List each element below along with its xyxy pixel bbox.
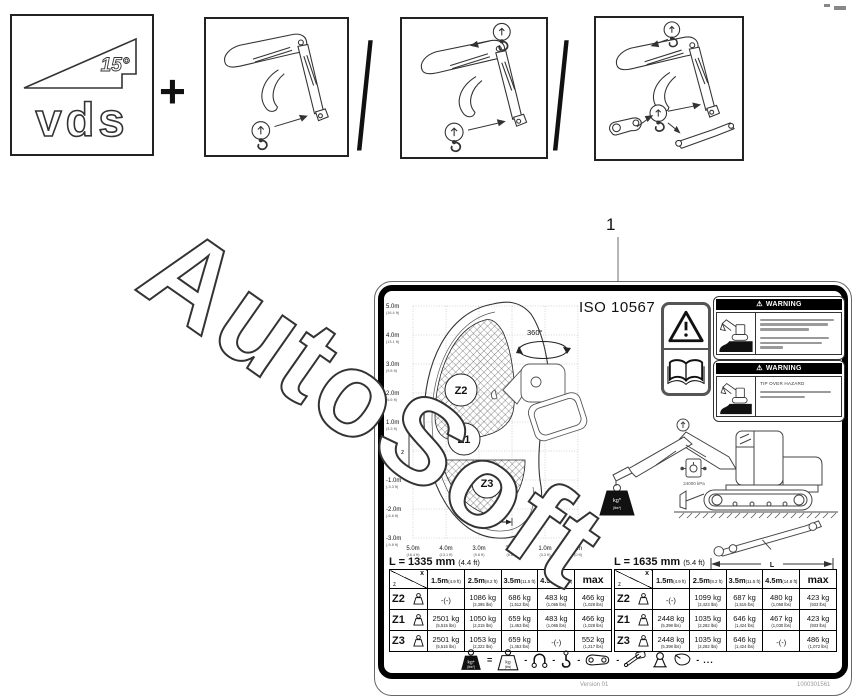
weight-icon: [637, 593, 650, 605]
col-header-max: max: [800, 570, 837, 589]
capacity-table-1635: L = 1635 mm (5.4 ft) x z 1.5m(4.9 ft) 2.…: [614, 556, 837, 652]
warning-header: ⚠ WARNING: [716, 363, 842, 374]
excavator-pictogram: [717, 313, 756, 354]
capacity-cell: 423 kg(933 lbs): [800, 610, 837, 631]
capacity-cell: 1086 kg(2,395 lbs): [464, 589, 501, 610]
boom-attachments-drawing: [596, 18, 738, 155]
warning-header: ⚠ WARNING: [716, 299, 842, 310]
iso-standard-text: ISO 10567: [579, 299, 655, 316]
svg-text:(-9.8 ft): (-9.8 ft): [386, 543, 399, 547]
capacity-cell: -(-): [428, 589, 465, 610]
capacity-cell: 467 kg(1,030 lbs): [763, 610, 800, 631]
table-row: Z2 -(-) 1086 kg(2,395 lbs) 686 kg(1,512 …: [390, 589, 612, 610]
table-corner-cell: x z: [615, 570, 653, 589]
svg-text:4.0m: 4.0m: [439, 546, 452, 552]
table-title: L = 1635 mm (5.4 ft): [614, 556, 837, 569]
cylinder-icon: [623, 651, 647, 668]
capacity-cell: 480 kg(1,058 lbs): [763, 589, 800, 610]
svg-text:5.0m: 5.0m: [386, 304, 399, 310]
capacity-cell: 646 kg(1,424 lbs): [726, 610, 763, 631]
blade-side-view: [704, 519, 838, 557]
boom-dual-hook-drawing: [402, 19, 542, 153]
svg-text:(16.4 ft): (16.4 ft): [386, 311, 400, 315]
corner-artifact: [824, 4, 830, 7]
zone-row-header: Z1: [615, 610, 653, 631]
warning-header-text: WARNING: [766, 365, 802, 372]
label-code-text: 1000301561: [797, 682, 830, 688]
warning-box-1: ⚠ WARNING: [713, 296, 845, 360]
lifting-eye-icon: [651, 651, 669, 669]
capacity-cell: 2448 kg(5,398 lbs): [653, 610, 690, 631]
operator-manual-icon: [667, 358, 705, 386]
zone-row-header: Z2: [390, 589, 428, 610]
manual-book-box: [664, 348, 708, 393]
table-row: Z1 2448 kg(5,398 lbs) 1035 kg(2,282 lbs)…: [615, 610, 837, 631]
dash-separator: -: [577, 655, 580, 665]
quick-coupler-icon: [584, 652, 612, 667]
callout-number-1[interactable]: 1: [606, 215, 615, 235]
hook-icon: [559, 650, 573, 669]
zone-row-header: Z3: [390, 631, 428, 652]
dash-separator: -: [616, 655, 619, 665]
warning-triangle-icon: ⚠: [756, 365, 763, 372]
black-weight-icon: kg* (lbs*): [459, 649, 483, 671]
legend-row: kg* (lbs*) = kg (lbs) - -: [459, 647, 825, 672]
tip-over-hazard-text: TIP OVER HAZARD: [760, 381, 837, 386]
svg-text:(-6.6 ft): (-6.6 ft): [386, 514, 399, 518]
capacity-cell: 1099 kg(2,423 lbs): [689, 589, 726, 610]
boom-attachments-box: [594, 16, 744, 161]
excavator-pictogram: [717, 377, 756, 416]
hook-point-icon: [677, 419, 689, 431]
slash-separator-2: /: [553, 22, 569, 172]
ground-pressure-icon: [681, 459, 706, 477]
capacity-cell: -(-): [653, 589, 690, 610]
equals-sign: =: [487, 655, 492, 665]
vds-label-text: vds: [36, 93, 129, 146]
capacity-cell: 483 kg(1,065 lbs): [538, 610, 575, 631]
boom-dual-hook-box: [400, 17, 548, 159]
bucket-icon: [673, 652, 692, 667]
col-header: 3.5m(11.5 ft): [726, 570, 763, 589]
col-header: 4.5m(14.8 ft): [763, 570, 800, 589]
warning-text-lines: [756, 313, 841, 354]
corner-artifact: [834, 6, 846, 10]
capacity-cell: 466 kg(1,028 lbs): [575, 589, 612, 610]
caution-icons-box: [661, 302, 711, 396]
boom-single-hook-box: [204, 17, 349, 157]
warning-box-2: ⚠ WARNING TIP OVER HAZARD: [713, 360, 845, 422]
link-part: [610, 118, 642, 135]
capacity-cell: 659 kg(1,453 lbs): [501, 610, 538, 631]
white-weight-icon: kg (lbs): [496, 649, 520, 671]
plus-sign: +: [159, 68, 186, 114]
vds-logo: 15° vds: [12, 16, 152, 154]
capacity-cell: 1035 kg(2,282 lbs): [689, 610, 726, 631]
warning-text-lines: TIP OVER HAZARD: [756, 377, 841, 416]
boom-single-hook-drawing: [206, 19, 343, 151]
capacity-cell: 2501 kg(5,515 lbs): [428, 610, 465, 631]
capacity-cell: 1050 kg(2,315 lbs): [464, 610, 501, 631]
table-row: Z1 2501 kg(5,515 lbs) 1050 kg(2,315 lbs)…: [390, 610, 612, 631]
ellipsis: ...: [703, 655, 714, 665]
table-corner-cell: x z: [390, 570, 428, 589]
svg-text:(lbs*): (lbs*): [467, 665, 475, 669]
warning-triangle-icon: ⚠: [756, 301, 763, 308]
callout-leader-line: [617, 237, 619, 283]
zone-row-header: Z2: [615, 589, 653, 610]
blade-part: [676, 123, 734, 148]
ground-pressure-value: 24000 kPa: [683, 481, 705, 486]
zone-row-header: Z1: [390, 610, 428, 631]
vds-logo-box: 15° vds: [10, 14, 154, 156]
vds-angle-text: 15°: [101, 55, 130, 76]
dash-separator: -: [524, 655, 527, 665]
weight-icon: [412, 614, 425, 626]
weight-icon: [412, 635, 425, 647]
table-row: Z2 -(-) 1099 kg(2,423 lbs) 687 kg(1,515 …: [615, 589, 837, 610]
rotation-label: 360°: [527, 328, 543, 337]
capacity-cell: 687 kg(1,515 lbs): [726, 589, 763, 610]
svg-text:5.0m: 5.0m: [406, 546, 419, 552]
capacity-cell: 466 kg(1,028 lbs): [575, 610, 612, 631]
col-header: 2.5m(8.2 ft): [689, 570, 726, 589]
weight-icon: [637, 635, 650, 647]
weight-icon: [637, 614, 650, 626]
dash-separator: -: [552, 655, 555, 665]
weight-icon: [412, 593, 425, 605]
shackle-icon: [531, 650, 548, 669]
col-header: 1.5m(4.9 ft): [653, 570, 690, 589]
warning-header-text: WARNING: [766, 301, 802, 308]
svg-text:(lbs): (lbs): [505, 665, 511, 669]
svg-text:-3.0m: -3.0m: [386, 536, 401, 542]
warning-triangle-icon: [667, 309, 705, 344]
version-text: Version 01: [580, 682, 608, 688]
col-header: 1.5m(4.9 ft): [428, 570, 465, 589]
capacity-cell: 423 kg(933 lbs): [800, 589, 837, 610]
parts-catalog-page: 15° vds +: [0, 0, 855, 699]
slash-separator-1: /: [357, 22, 373, 172]
warning-triangle-box: [664, 305, 708, 348]
dash-separator: -: [696, 655, 699, 665]
